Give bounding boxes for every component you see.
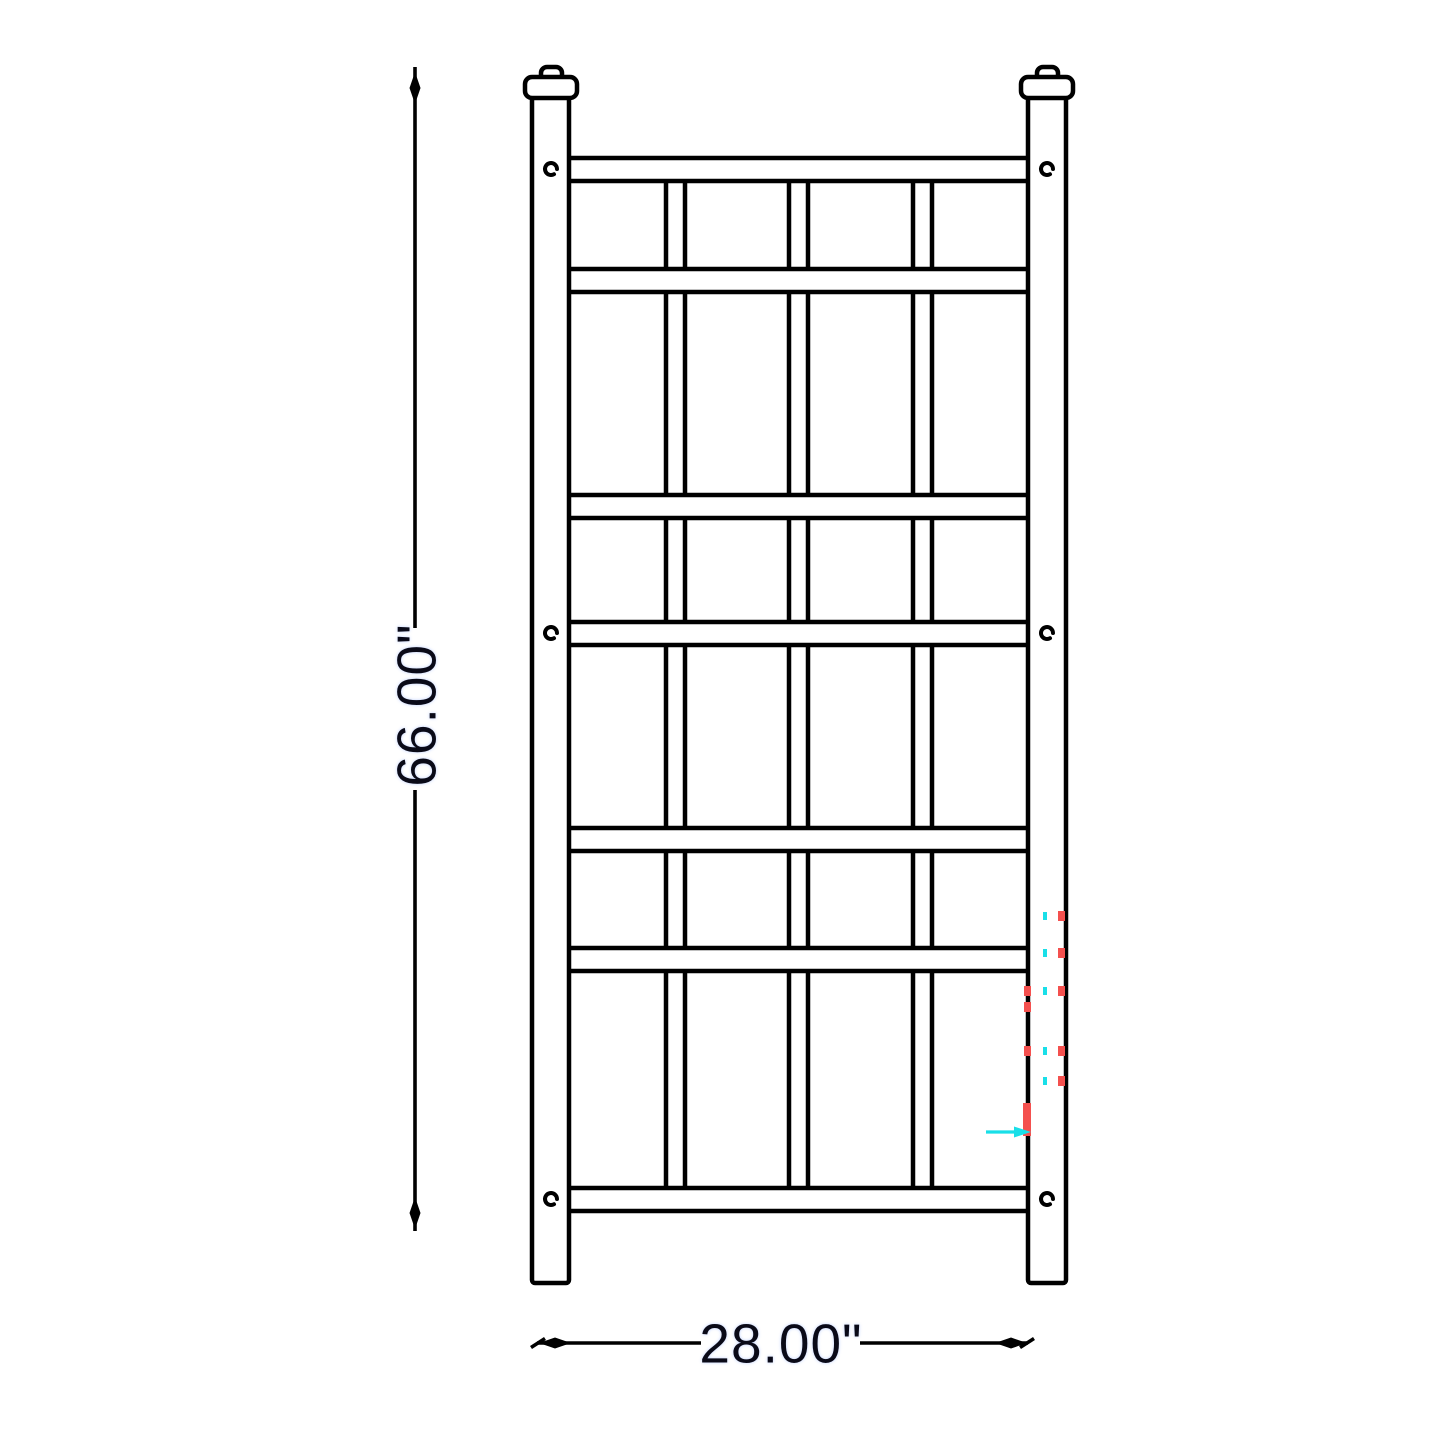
snap-mark-red: [1024, 986, 1031, 996]
post-cap: [1021, 77, 1073, 98]
snap-mark-red: [1058, 1076, 1065, 1086]
post: [1028, 95, 1066, 1283]
snap-mark-cyan: [1043, 1047, 1047, 1055]
lattice-slat: [789, 639, 808, 834]
snap-mark-red: [1058, 986, 1065, 996]
arrowhead-up-icon: [410, 72, 421, 104]
snap-mark-cyan: [1043, 1077, 1047, 1085]
lattice-slat: [913, 965, 932, 1194]
lattice-slat: [789, 175, 808, 275]
trellis-drawing: [0, 0, 1445, 1445]
lattice-slat: [666, 286, 685, 501]
snap-mark-cyan: [1043, 912, 1047, 920]
lattice-slat: [913, 175, 932, 275]
post: [532, 95, 569, 1283]
lattice-slat: [789, 286, 808, 501]
snap-mark-red: [1058, 911, 1065, 921]
lattice-slat: [913, 512, 932, 628]
height-dimension-label: 66.00": [390, 623, 445, 786]
snap-mark-red: [1024, 1002, 1031, 1012]
lattice-rail: [567, 495, 1031, 518]
drawing-canvas: 66.00" 28.00": [0, 0, 1445, 1445]
lattice-rail: [567, 828, 1031, 851]
lattice-rail: [567, 622, 1031, 645]
lattice-slat: [913, 845, 932, 954]
snap-mark-red: [1058, 948, 1065, 958]
snap-mark-red: [1024, 1046, 1031, 1056]
lattice-slat: [789, 965, 808, 1194]
snap-mark-cyan: [1043, 949, 1047, 957]
lattice-slat: [789, 845, 808, 954]
lattice-slat: [789, 512, 808, 628]
snap-mark-cyan: [1043, 987, 1047, 995]
lattice-rail: [567, 1188, 1031, 1211]
lattice-slat: [666, 512, 685, 628]
lattice-rail: [567, 269, 1031, 292]
lattice-slat: [666, 845, 685, 954]
lattice-rail: [567, 158, 1031, 181]
snap-mark-red: [1058, 1046, 1065, 1056]
lattice-slat: [666, 639, 685, 834]
lattice-slat: [666, 175, 685, 275]
width-dimension-label: 28.00": [699, 1317, 862, 1372]
post-cap: [525, 77, 577, 98]
arrowhead-down-icon: [410, 1197, 421, 1229]
lattice-rail: [567, 948, 1031, 971]
lattice-slat: [913, 286, 932, 501]
lattice-slat: [913, 639, 932, 834]
lattice-slat: [666, 965, 685, 1194]
